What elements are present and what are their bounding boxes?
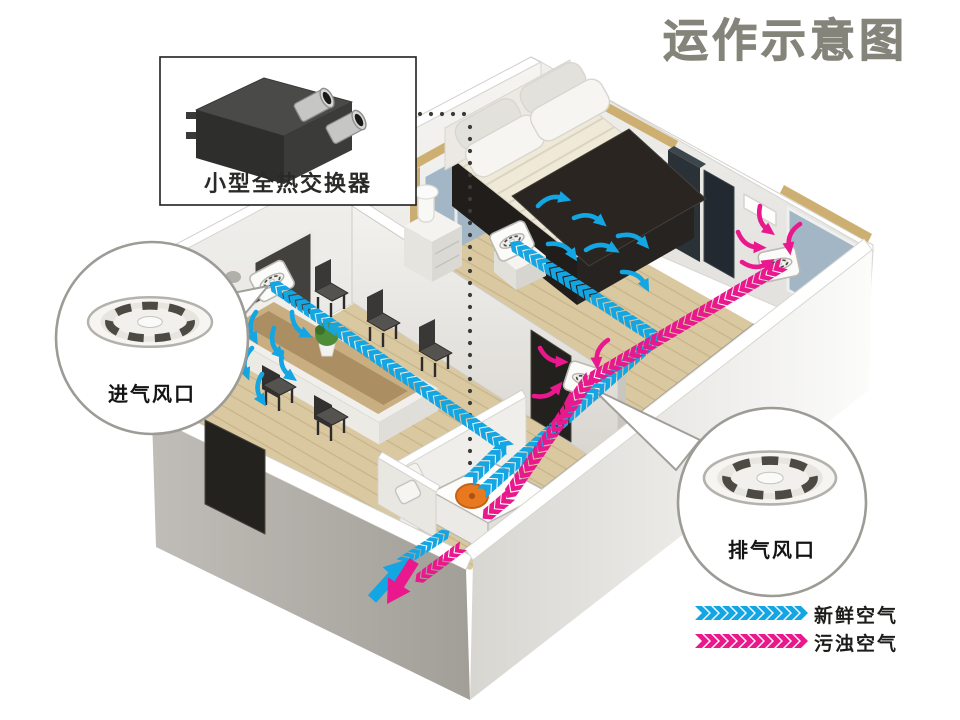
- legend-fresh-air-swatch: [695, 606, 808, 620]
- unit-disc-center: [469, 493, 475, 499]
- plant-leaf: [315, 325, 325, 335]
- lamp-shade: [414, 185, 438, 199]
- legend-polluted-air-swatch: [695, 634, 808, 648]
- device-tab: [186, 112, 196, 119]
- exhaust-vent-callout: [678, 408, 866, 596]
- legend-fresh-air-label: 新鲜空气: [814, 601, 898, 628]
- heat-exchanger-label: 小型全热交换器: [160, 166, 416, 198]
- exhaust-vent-photo-icon: [704, 452, 836, 505]
- wardrobe-2: [704, 170, 734, 278]
- intake-vent-photo-icon: [88, 297, 212, 347]
- intake-vent-label: 进气风口: [62, 378, 242, 407]
- operation-diagram-page: 运作示意图 小型全热交换器 进气风口 排气风口 新鲜空气 污浊空气: [0, 0, 960, 720]
- exhaust-vent-label: 排气风口: [682, 534, 862, 563]
- page-title: 运作示意图: [663, 4, 908, 69]
- device-tab: [186, 132, 196, 139]
- legend-polluted-air-label: 污浊空气: [814, 629, 898, 656]
